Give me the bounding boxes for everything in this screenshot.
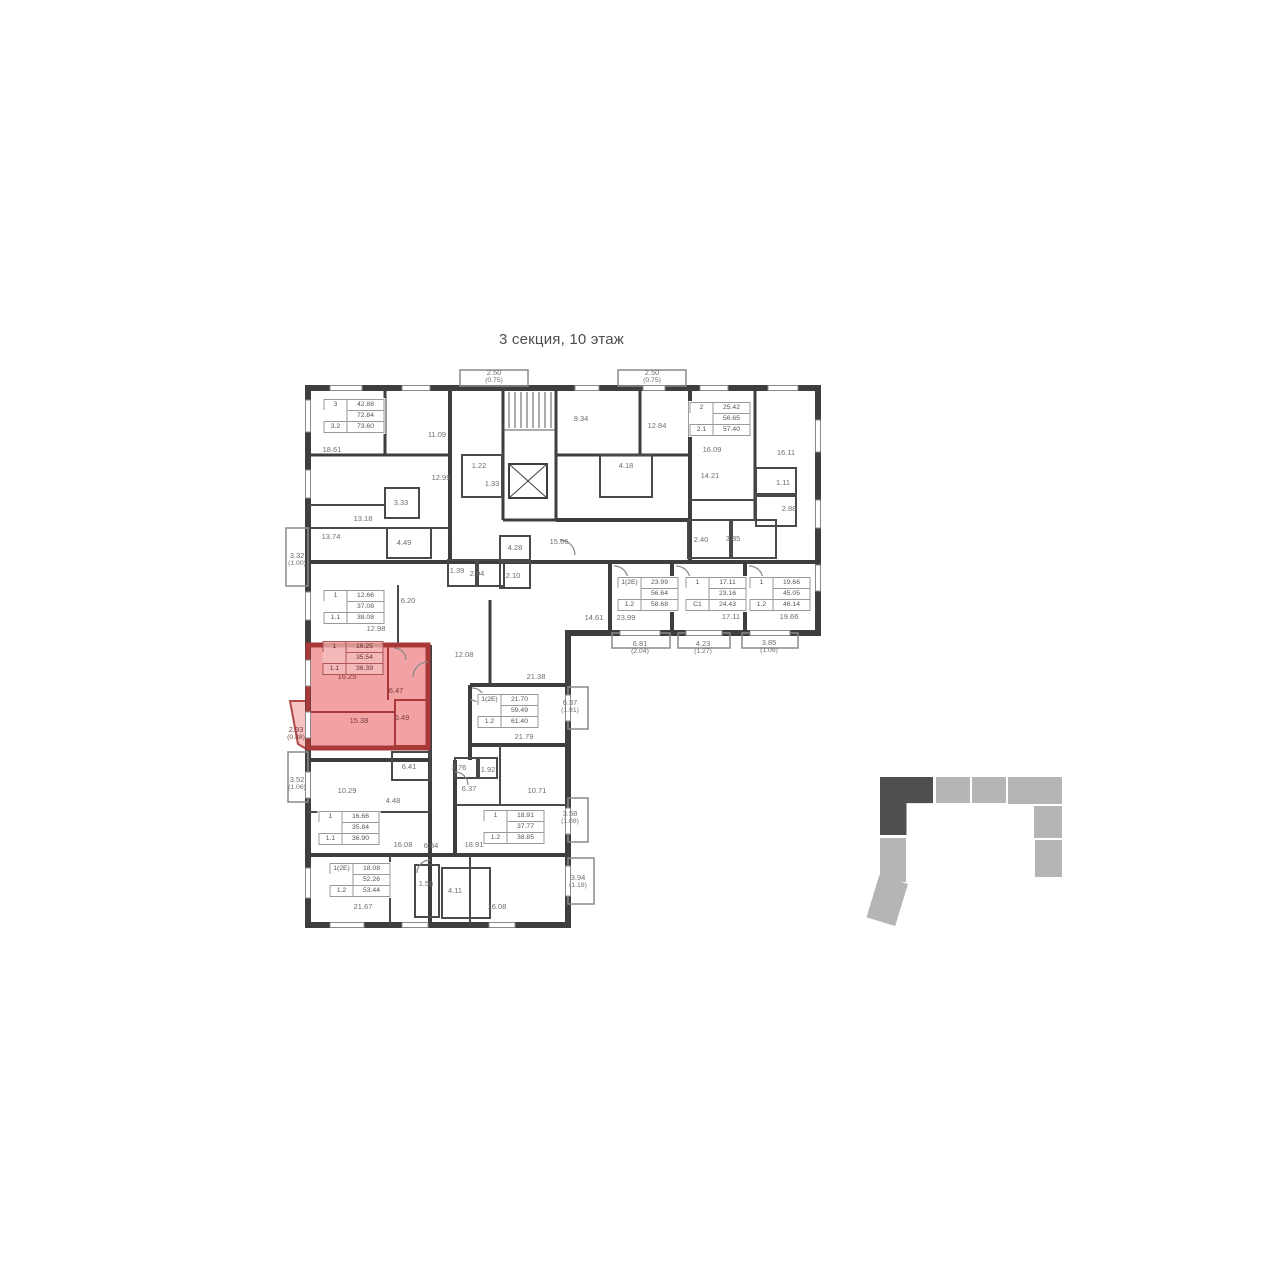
apartment-area-cell: 52.26: [353, 874, 391, 885]
room-area-label: 3.32(1.00): [288, 552, 306, 568]
apartment-type-cell: 2: [690, 402, 714, 413]
room-area-label: 16.09: [703, 446, 722, 454]
minimap-section[interactable]: [1008, 777, 1062, 804]
apartment-type-cell: [323, 652, 347, 663]
apartment-type-cell: 1: [686, 577, 710, 588]
room-area-label: 4.23(1.27): [694, 640, 712, 656]
apartment-type-cell: 1: [319, 811, 343, 822]
minimap-section[interactable]: [936, 777, 970, 803]
room-area-label: 3.58(1.08): [561, 810, 579, 826]
apartment-info-box[interactable]: 118.9137.771.238.85: [484, 810, 545, 844]
room-area-label: 12.99: [432, 474, 451, 482]
room-area-label: 3.94(1.18): [569, 874, 587, 890]
room-area-label: 2.50(0.75): [643, 369, 661, 385]
room-area-label: 1.39: [450, 567, 465, 575]
apartment-area-cell: 35.54: [346, 652, 384, 663]
apartment-type-cell: [324, 410, 348, 421]
room-area-label: 13.74: [322, 533, 341, 541]
room-area-label: 3.85: [726, 535, 741, 543]
apartment-area-cell: 12.66: [347, 590, 385, 601]
apartment-area-cell: 73.60: [347, 421, 385, 433]
apartment-area-cell: 25.42: [713, 402, 751, 413]
room-area-label: 2.40: [694, 536, 709, 544]
apartment-area-cell: 72.84: [347, 410, 385, 421]
room-area-label: 6.20: [401, 597, 416, 605]
minimap-section-active[interactable]: [880, 777, 933, 835]
apartment-type-cell: С1: [686, 599, 710, 611]
apartment-area-cell: 16.66: [342, 811, 380, 822]
room-area-label: 21.38: [527, 673, 546, 681]
room-area-label: 1.33: [485, 480, 500, 488]
apartment-area-cell: 61.40: [501, 716, 539, 728]
room-area-label: 3.85(1.08): [760, 639, 778, 655]
room-area-label: 10.71: [528, 787, 547, 795]
apartment-info-box[interactable]: 1(2Е)21.7059.491.261.40: [478, 694, 539, 728]
room-area-label: 14.21: [701, 472, 720, 480]
apartment-area-cell: 38.08: [347, 612, 385, 624]
apartment-area-cell: 46.14: [773, 599, 811, 611]
room-area-label: 2.50(0.75): [485, 369, 503, 385]
room-area-label: 1.92: [481, 766, 496, 774]
room-area-label: 6.47: [389, 687, 404, 695]
room-area-label: 4.28: [508, 544, 523, 552]
apartment-type-cell: [750, 588, 774, 599]
apartment-type-cell: 1.2: [478, 716, 502, 728]
room-area-label: 6.81(2.04): [631, 640, 649, 656]
room-area-label: 18.61: [323, 446, 342, 454]
room-area-label: 6.84: [424, 842, 439, 850]
room-area-label: 9.34: [574, 415, 589, 423]
room-area-label: 12.08: [455, 651, 474, 659]
apartment-area-cell: 24.43: [709, 599, 747, 611]
apartment-area-cell: 21.70: [501, 694, 539, 705]
apartment-type-cell: [690, 413, 714, 424]
minimap-section[interactable]: [1034, 806, 1062, 838]
room-area-label: 1.22: [472, 462, 487, 470]
apartment-area-cell: 18.08: [353, 863, 391, 874]
apartment-area-cell: 56.65: [713, 413, 751, 424]
apartment-type-cell: 1.2: [618, 599, 642, 611]
apartment-type-cell: 1: [750, 577, 774, 588]
room-area-label: 13.18: [354, 515, 373, 523]
apartment-area-cell: 59.49: [501, 705, 539, 716]
minimap-section[interactable]: [880, 838, 906, 882]
apartment-info-box[interactable]: 1(2Е)23.9956.641.258.68: [618, 577, 679, 611]
apartment-type-cell: 1.1: [319, 833, 343, 845]
apartment-area-cell: 36.39: [346, 663, 384, 675]
apartment-info-box[interactable]: 119.6645.051.246.14: [750, 577, 811, 611]
apartment-type-cell: 2.1: [690, 424, 714, 436]
floorplan-label-layer: 18.6111.0912.991.221.333.3313.1813.744.4…: [0, 0, 1280, 1280]
room-area-label: 12.84: [648, 422, 667, 430]
apartment-type-cell: [618, 588, 642, 599]
apartment-area-cell: 58.68: [641, 599, 679, 611]
room-area-label: 3.33: [394, 499, 409, 507]
room-area-label: 6.37: [462, 785, 477, 793]
apartment-type-cell: [319, 822, 343, 833]
apartment-area-cell: 37.08: [347, 601, 385, 612]
room-area-label: 16.08: [488, 903, 507, 911]
room-area-label: 4.49: [397, 539, 412, 547]
apartment-type-cell: 1(2Е): [330, 863, 354, 874]
apartment-area-cell: 42.88: [347, 399, 385, 410]
apartment-info-box[interactable]: 342.8872.843.273.60: [324, 399, 385, 433]
apartment-type-cell: 1: [323, 641, 347, 652]
apartment-info-box[interactable]: 225.4256.652.157.40: [690, 402, 751, 436]
apartment-type-cell: 1.1: [323, 663, 347, 675]
room-area-label: 14.61: [585, 614, 604, 622]
room-area-label: 1.56: [419, 880, 434, 888]
apartment-area-cell: 35.84: [342, 822, 380, 833]
room-area-label: 2.10: [506, 572, 521, 580]
room-area-label: 6.37(1.91): [561, 699, 579, 715]
apartment-type-cell: 1: [324, 590, 348, 601]
room-area-label: 4.11: [448, 887, 462, 895]
room-area-label: 10.29: [338, 787, 357, 795]
apartment-area-cell: 18.91: [507, 810, 545, 821]
apartment-info-box-selected[interactable]: 116.2535.541.136.39: [323, 641, 384, 675]
room-area-label: 16.08: [394, 841, 413, 849]
apartment-type-cell: 1(2Е): [618, 577, 642, 588]
apartment-type-cell: 1(2Е): [478, 694, 502, 705]
room-area-label: 17.11: [722, 613, 740, 621]
apartment-area-cell: 38.85: [507, 832, 545, 844]
room-area-label: 2.88: [782, 505, 797, 513]
room-area-label: 2.94: [470, 570, 485, 578]
room-area-label: 21.79: [515, 733, 534, 741]
room-area-label: 15.38: [350, 717, 369, 725]
room-area-label: 21.67: [354, 903, 373, 911]
apartment-area-cell: 57.40: [713, 424, 751, 436]
apartment-area-cell: 56.64: [641, 588, 679, 599]
room-area-label: 1.11: [776, 479, 790, 487]
room-area-label: 4.48: [386, 797, 401, 805]
room-area-label: 23.99: [617, 614, 636, 622]
apartment-type-cell: 1.2: [330, 885, 354, 897]
apartment-area-cell: 16.25: [346, 641, 384, 652]
apartment-area-cell: 23.99: [641, 577, 679, 588]
apartment-area-cell: 36.90: [342, 833, 380, 845]
apartment-type-cell: 1.2: [484, 832, 508, 844]
apartment-type-cell: 3: [324, 399, 348, 410]
apartment-area-cell: 23.16: [709, 588, 747, 599]
room-area-label: 16.11: [777, 449, 795, 457]
minimap-section[interactable]: [972, 777, 1006, 803]
room-area-label: 6.49: [395, 714, 410, 722]
room-area-label: 11.09: [428, 431, 446, 439]
floor-plan-page: 3 секция, 10 этаж: [0, 0, 1280, 1280]
apartment-area-cell: 37.77: [507, 821, 545, 832]
apartment-type-cell: [324, 601, 348, 612]
room-area-label: 12.98: [367, 625, 386, 633]
building-minimap: [876, 772, 1072, 932]
apartment-type-cell: [478, 705, 502, 716]
room-area-label: 15.66: [550, 538, 569, 546]
room-area-label: 4.18: [619, 462, 634, 470]
apartment-type-cell: 1.1: [324, 612, 348, 624]
room-area-label: 3.52(1.06): [288, 776, 306, 792]
room-area-label: 19.66: [780, 613, 799, 621]
room-area-label: 6.41: [402, 763, 417, 771]
apartment-area-cell: 53.44: [353, 885, 391, 897]
apartment-type-cell: 3.2: [324, 421, 348, 433]
apartment-info-box[interactable]: 1(2Е)18.0852.261.253.44: [330, 863, 391, 897]
room-area-label: 2.76: [452, 764, 467, 772]
room-area-label: 2.93(0.88): [287, 726, 305, 742]
room-area-label: 18.91: [465, 841, 484, 849]
apartment-info-box[interactable]: 112.6637.081.138.08: [324, 590, 385, 624]
apartment-type-cell: [330, 874, 354, 885]
apartment-type-cell: [686, 588, 710, 599]
apartment-area-cell: 17.11: [709, 577, 747, 588]
apartment-type-cell: 1.2: [750, 599, 774, 611]
apartment-type-cell: 1: [484, 810, 508, 821]
apartment-type-cell: [484, 821, 508, 832]
minimap-section[interactable]: [1035, 840, 1062, 877]
apartment-area-cell: 19.66: [773, 577, 811, 588]
apartment-info-box[interactable]: 117.1123.16С124.43: [686, 577, 747, 611]
apartment-info-box[interactable]: 116.6635.841.136.90: [319, 811, 380, 845]
apartment-area-cell: 45.05: [773, 588, 811, 599]
